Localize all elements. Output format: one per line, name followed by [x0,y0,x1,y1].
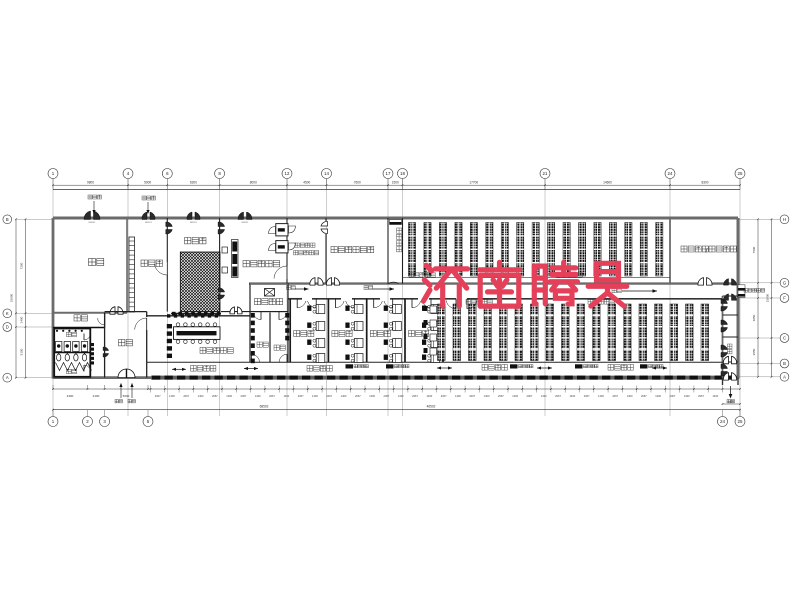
svg-text:A: A [6,375,9,380]
svg-text:1400: 1400 [569,394,575,398]
svg-text:14: 14 [324,171,329,176]
svg-text:2067: 2067 [555,394,561,398]
svg-text:4500: 4500 [303,181,310,185]
svg-text:2067: 2067 [698,394,704,398]
svg-text:2067: 2067 [212,394,218,398]
svg-text:2067: 2067 [298,394,304,398]
svg-text:C: C [783,336,786,341]
svg-text:4050: 4050 [752,314,756,321]
svg-text:K: K [6,311,9,316]
svg-text:1400: 1400 [20,316,24,323]
svg-text:1400: 1400 [255,394,261,398]
svg-text:A: A [783,374,786,379]
svg-text:1400: 1400 [341,394,347,398]
svg-text:B: B [6,217,9,222]
svg-text:1400: 1400 [598,394,604,398]
svg-text:1400: 1400 [198,394,204,398]
svg-text:M1521: M1521 [89,222,96,224]
svg-text:21: 21 [543,171,548,176]
svg-text:5000: 5000 [144,181,151,185]
svg-text:24: 24 [668,171,673,176]
svg-text:15900: 15900 [10,293,14,302]
svg-text:24: 24 [720,419,725,424]
svg-text:2067: 2067 [527,394,533,398]
svg-text:2067: 2067 [326,394,332,398]
svg-text:7500: 7500 [752,246,756,253]
svg-text:7600: 7600 [354,181,361,185]
svg-text:2067: 2067 [269,394,275,398]
svg-text:25: 25 [738,419,743,424]
svg-text:46502: 46502 [427,405,436,409]
svg-text:1400: 1400 [512,394,518,398]
svg-text:6300: 6300 [190,181,197,185]
svg-text:8300: 8300 [701,181,708,185]
svg-text:2067: 2067 [155,394,161,398]
svg-text:B: B [783,361,786,366]
svg-text:H: H [783,217,786,222]
svg-text:1600: 1600 [728,400,734,404]
svg-text:25: 25 [738,171,743,176]
svg-text:1400: 1400 [226,394,232,398]
svg-text:2550: 2550 [752,348,756,355]
svg-text:7200: 7200 [20,262,24,269]
svg-text:17700: 17700 [469,181,478,185]
svg-text:18: 18 [400,171,405,176]
svg-text:2067: 2067 [469,394,475,398]
svg-text:/: / [706,248,708,255]
svg-text:M1521: M1521 [242,222,249,224]
svg-text:1400: 1400 [484,394,490,398]
svg-text:2067: 2067 [641,394,647,398]
svg-text:1400: 1400 [426,394,432,398]
svg-text:8000: 8000 [250,181,257,185]
svg-text:M1521: M1521 [190,222,197,224]
svg-text:1400: 1400 [369,394,375,398]
svg-text:2067: 2067 [612,394,618,398]
svg-text:1400: 1400 [283,394,289,398]
svg-text:2067: 2067 [384,394,390,398]
svg-text:2067: 2067 [670,394,676,398]
svg-text:5100: 5100 [20,348,24,355]
svg-text:17: 17 [386,171,391,176]
svg-text:2067: 2067 [412,394,418,398]
svg-text:1400: 1400 [627,394,633,398]
svg-text:2067: 2067 [183,394,189,398]
svg-text:1400: 1400 [541,394,547,398]
svg-text:2100: 2100 [93,394,100,398]
svg-text:1400: 1400 [684,394,690,398]
svg-text:D: D [6,325,9,330]
svg-text:1400: 1400 [312,394,318,398]
svg-text:1400: 1400 [455,394,461,398]
svg-text:1400: 1400 [398,394,404,398]
svg-text:14600: 14600 [603,181,612,185]
svg-text:1400: 1400 [169,394,175,398]
svg-text:M1521: M1521 [145,222,152,224]
svg-text:5600: 5600 [123,394,130,398]
svg-text:15900: 15900 [766,293,770,302]
svg-text:68502: 68502 [260,405,269,409]
svg-text:9800: 9800 [87,181,94,185]
svg-text:4300: 4300 [67,394,74,398]
svg-text:1400: 1400 [655,394,661,398]
svg-text:12: 12 [285,171,290,176]
svg-text:2067: 2067 [355,394,361,398]
svg-text:G: G [783,280,786,285]
svg-text:2067: 2067 [584,394,590,398]
svg-text:2067: 2067 [498,394,504,398]
svg-text:1500: 1500 [392,181,399,185]
svg-text:1400: 1400 [712,394,718,398]
svg-text:F: F [783,296,786,301]
svg-text:2067: 2067 [441,394,447,398]
svg-text:2067: 2067 [241,394,247,398]
